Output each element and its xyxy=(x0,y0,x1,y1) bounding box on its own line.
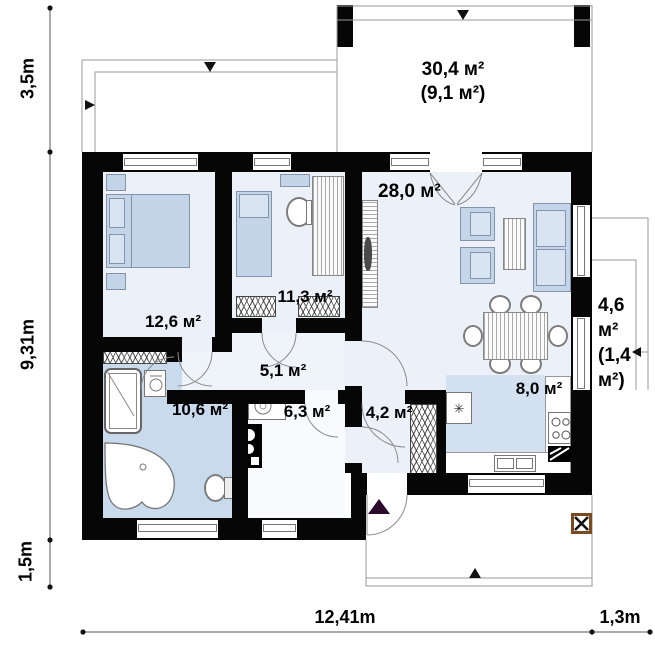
wall-bed2-right xyxy=(345,172,362,341)
cooktop-burners xyxy=(549,413,572,445)
oven xyxy=(548,446,571,462)
floor-plan: ✳ xyxy=(0,0,655,665)
pillow xyxy=(109,198,125,228)
arrow-down-icon xyxy=(204,62,216,72)
room-label-living: 28,0 м² xyxy=(378,180,488,204)
dim-house-width: 12,41m xyxy=(295,607,395,628)
terrace-area-sub: (9,1 м²) xyxy=(378,82,528,106)
fridge-icon: ✳ xyxy=(454,401,465,416)
dim-house-depth: 9,31m xyxy=(18,295,39,395)
arrow-down-icon xyxy=(457,10,469,20)
window xyxy=(482,154,522,170)
bathtub xyxy=(103,441,178,523)
room-label-entry: 4,2 м² xyxy=(336,402,442,423)
porch-column-icon xyxy=(571,513,592,534)
bathroom-sink xyxy=(144,370,166,397)
terrace-door-gap xyxy=(430,152,482,172)
terrace-area: 30,4 м² xyxy=(378,58,528,82)
pillow xyxy=(239,194,269,218)
pillow xyxy=(109,234,125,264)
window xyxy=(573,205,590,277)
dim-terrace-depth: 3,5m xyxy=(18,39,39,119)
wall-step xyxy=(351,495,366,540)
cooktop xyxy=(548,412,571,444)
nightstand xyxy=(106,174,126,191)
room-label-kitchen: 8,0 м² xyxy=(486,378,592,399)
room-label-side-terrace: 4,6 м² (1,4 м²) xyxy=(598,293,652,393)
wall-exterior-bottom-left xyxy=(82,518,366,540)
window xyxy=(137,520,218,538)
window xyxy=(253,154,291,170)
arrow-right-icon xyxy=(85,100,95,110)
window xyxy=(390,154,430,170)
terrace-post xyxy=(337,5,353,47)
entry-marker-icon xyxy=(368,499,390,514)
entry-door-gap xyxy=(367,473,407,495)
coffee-table xyxy=(503,218,526,270)
window xyxy=(123,154,198,170)
room-label-terrace: 30,4 м² (9,1 м²) xyxy=(378,58,528,106)
dim-side-width: 1,3m xyxy=(580,607,655,628)
terrace-post xyxy=(574,5,590,47)
wall-exterior-left xyxy=(82,152,103,540)
chair-back xyxy=(306,200,312,225)
tv xyxy=(364,237,372,271)
room-label-bedroom1: 12,6 м² xyxy=(120,311,226,332)
sofa-cushion xyxy=(536,210,566,247)
arrow-up-icon xyxy=(469,568,481,578)
room-label-bedroom2: 11,3 м² xyxy=(252,286,358,307)
nightstand xyxy=(106,273,126,290)
dining-chair xyxy=(548,325,568,347)
dining-chair xyxy=(463,325,483,347)
dining-table xyxy=(483,312,548,360)
dim-porch-depth: 1,5m xyxy=(16,522,37,602)
room-label-hallway: 5,1 м² xyxy=(230,360,336,381)
desk xyxy=(312,176,344,276)
window xyxy=(262,520,297,538)
room-floor-hallway2 xyxy=(178,352,232,390)
window xyxy=(468,475,545,493)
sofa-cushion xyxy=(536,249,566,286)
room-label-bathroom: 10,6 м² xyxy=(147,399,253,420)
fridge: ✳ xyxy=(446,392,472,424)
wall-shelf xyxy=(280,174,310,187)
